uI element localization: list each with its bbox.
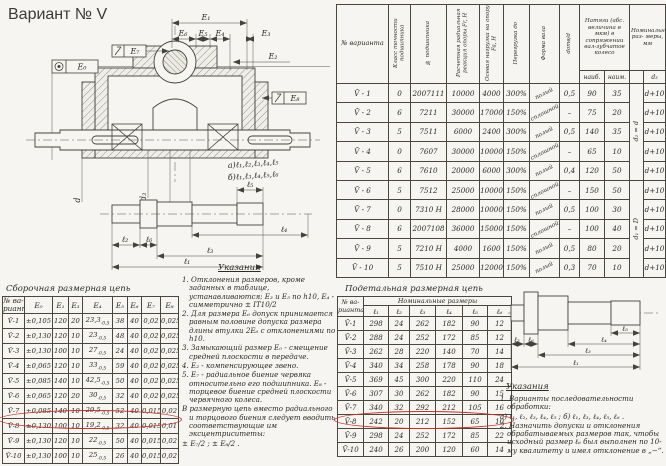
cell: d+10 [644,161,666,180]
cell: V̄-2 [338,331,364,345]
cell: 34 [389,359,410,373]
dim-label-e3: Е₃ [260,29,270,38]
table-row: V̄-3±0,1301001027-0,524400,020,025 [3,344,179,359]
table-row: V̄ - 8620071083600015000150%сплошной–100… [337,219,666,238]
cell: 7511 [411,122,447,141]
note-item: 2. Для размера Е₆ допуск принимается рав… [182,310,337,343]
dim-label-l1: ℓ₁ [572,359,579,367]
cell: 120 [53,329,69,344]
runout-frame-e8: Е₈ [262,92,306,104]
cell: 65 [580,142,605,161]
cell: 7610 [411,161,447,180]
cell: d+10 [644,122,666,141]
note-item: а) ℓ₁, ℓ₂, ℓ₃, ℓ₄, ℓ₅ ; б) ℓ₁, ℓ₃, ℓ₄, ℓ… [500,413,664,421]
cell: ±0,085 [25,404,53,419]
table-row: V̄-4340342581789018 [338,359,512,373]
cell: 0,02 [142,314,161,329]
cell: 90 [463,317,488,331]
col-header-E1: Е₁ [53,297,69,314]
dim-label-e4: Е₄ [214,29,224,38]
cell: d₂ = d [630,84,644,181]
cell: 90 [463,387,488,401]
table-row: V̄ - 6575122500010000150%сплошной–15050d… [337,180,666,199]
cell: 23-0,5 [83,329,113,344]
table-row: V̄-2288242521728512 [338,331,512,345]
cell: 10 [69,419,83,434]
cell: 120 [53,434,69,449]
cell: 0,015 [142,419,161,434]
cell: V̄-4 [338,359,364,373]
cell: 7211 [411,103,447,122]
cell: 150% [504,103,530,122]
cell: 40 [128,329,142,344]
table-row: V̄-73403229221210516 [338,401,512,415]
table-row: V̄-8±0,1301001019,2-0,532400,0150,01 [3,419,179,434]
detail-chain-title: Подетальная размерная цепь [345,284,483,294]
cell: 100 [580,200,605,219]
cell: V̄-10 [3,449,25,464]
cell: 258 [410,359,436,373]
cell: 120 [53,359,69,374]
cell: 0,02 [161,404,179,419]
cell: – [560,103,580,122]
cell: 70 [580,258,605,277]
cell: 10 [69,344,83,359]
dim-label-e0: Е₀ [76,63,87,72]
cell: полый [530,239,560,258]
datum-frame-e0: Е₀ [52,60,98,73]
cell: полый [530,200,560,219]
cell: 10 [69,359,83,374]
cell: 172 [436,429,463,443]
cell: d+10 [644,103,666,122]
cell: V̄-6 [3,389,25,404]
col-header-max: наиб. [580,71,605,84]
diameter-label-d: d [73,197,82,202]
cell: 0,01 [161,419,179,434]
cell: 50 [113,434,128,449]
cell: V̄ - 6 [337,180,389,199]
cell: d+10 [644,239,666,258]
cell: 262 [410,387,436,401]
cell: 4000 [447,239,480,258]
cell: 100 [580,219,605,238]
cell: 10 [605,142,630,161]
cell: – [560,142,580,161]
cell: 0,02 [142,344,161,359]
cell: – [560,180,580,199]
dim-label-l3: ℓ₃ [207,246,214,255]
cell: 10 [69,329,83,344]
dim-label-l6: ℓ₆ [146,235,153,244]
cell: 288 [364,331,389,345]
cell: 298 [364,429,389,443]
col-group-nominal: Номинальные раз- меры, мм [630,5,666,71]
col-header-d3: d₃ [644,71,666,84]
cell: 0 [389,84,411,103]
col-header-E7: Е₇ [142,297,161,314]
cell: 340 [364,401,389,415]
note-item: 5. Е₇ - радиальное биение червяка относи… [182,371,337,404]
cell: 85 [463,331,488,345]
col-header-radial-load: Расчетная радиальная реакция опоры Fr, Н [447,5,480,84]
cell: 20 [69,314,83,329]
variants-table: № варианта Класс точности подшипника № п… [336,4,666,278]
cell: 0,02 [142,374,161,389]
cell: 30000 [447,142,480,161]
col-header-l3: ℓ₃ [410,306,436,317]
cell: 0,015 [142,404,161,419]
cell: 10 [69,374,83,389]
table-row: V̄-6±0,0651202030-0,532400,020,025 [3,389,179,404]
cell: 0,015 [142,449,161,464]
cell: V̄ - 5 [337,161,389,180]
note-item: ± Е₇/2 ; ± Е₈/2 . [182,440,337,448]
cell: ±0,085 [25,374,53,389]
cell: 150% [504,219,530,238]
cell: 20 [389,415,410,429]
col-header-E5: Е₅ [113,297,128,314]
col-header-variant: № варианта [337,5,389,84]
cell: 40 [128,434,142,449]
cell: 19,2-0,5 [83,419,113,434]
cell: 0 [389,200,411,219]
cell: V̄-8 [338,415,364,429]
cell: 90 [580,84,605,103]
cell: 65 [463,415,488,429]
table-row: V̄ - 567610200006000300%полый0,412050d+1… [337,161,666,180]
dim-label-l3: ℓ₃ [584,347,591,355]
table-row: V̄ - 35751160002400300%полый0,514035d+10 [337,122,666,141]
table-row: V̄ - 1057510 Н2500012000150%полый0,37010… [337,258,666,277]
dim-label-l2: ℓ₂ [122,235,129,244]
dim-label-e7: Е₇ [129,47,140,56]
cell: 40 [128,404,142,419]
cell: V̄-7 [3,404,25,419]
cell: 150% [504,180,530,199]
cell: 24 [389,331,410,345]
cell: 2007108 [411,219,447,238]
cell: 300 [410,373,436,387]
cell: 0,025 [161,344,179,359]
cell: 40 [128,344,142,359]
cell: 10000 [480,180,504,199]
cell: 120 [53,314,69,329]
cell: 298 [364,317,389,331]
cell: ±0,105 [25,314,53,329]
cell: 6 [389,219,411,238]
cell: 26 [389,443,410,457]
note-item: 4. Е₂ - компенсирующее звено. [182,362,337,370]
cell: 4000 [480,84,504,103]
cell: 212 [410,415,436,429]
cell: 70 [463,345,488,359]
cell: 38 [113,314,128,329]
cell: 29,5-0,5 [83,404,113,419]
dim-label-l2: ℓ₂ [513,336,520,344]
cell: 100 [53,344,69,359]
cell: 100 [53,419,69,434]
col-header-variant: № ва- рианта [3,297,25,314]
col-header-axial-load: Осевая нагрузка на опору Fa, Н [480,5,504,84]
cell: 35 [605,84,630,103]
cell: 10 [605,258,630,277]
cell: d+10 [644,180,666,199]
table-row: V̄-9298242521728522 [338,429,512,443]
table-row: V̄-53694530022011024 [338,373,512,387]
cell: полый [530,122,560,141]
cell: 140 [580,122,605,141]
cell: 20 [69,389,83,404]
cell: 252 [410,331,436,345]
cell: ±0,130 [25,344,53,359]
cell: 292 [410,401,436,415]
cell: V̄ - 9 [337,239,389,258]
table-row: V̄-7±0,0851401029,5-0,552400,0150,02 [3,404,179,419]
cell: 212 [436,401,463,415]
cell: сплошной [530,142,560,161]
table-row: V̄-10240262001206014 [338,443,512,457]
dim-label-l4: ℓ₄ [281,225,288,234]
dim-label-l4: ℓ₄ [600,336,607,344]
cell: 0,025 [161,359,179,374]
cell: 0,025 [161,389,179,404]
cell: 30000 [447,103,480,122]
table-row: V̄ - 957210 Н40001600150%полый0,58020d+1… [337,239,666,258]
cell: 369 [364,373,389,387]
cell: 28000 [447,200,480,219]
col-header-accuracy: Класс точности подшипника [389,5,411,84]
dim-label-l5: ℓ₅ [621,325,628,333]
cell: 10000 [480,142,504,161]
cell: 10 [69,449,83,464]
notes-left: Указания 1. Отклонения размеров, кроме з… [182,264,337,449]
cell: 50 [605,161,630,180]
table-row: V̄-1298242621829012 [338,317,512,331]
table-row: V̄ - 707310 Н2800010000150%полый0,510030… [337,200,666,219]
cell: 0,025 [161,374,179,389]
col-header-E0: Е₀ [25,297,53,314]
cell: 40 [128,389,142,404]
cell: 12000 [480,258,504,277]
cell: 150 [580,180,605,199]
cell: 24 [113,344,128,359]
dim-label-l6: ℓ₆ [527,336,534,344]
cell: 242 [364,415,389,429]
col-header-E4: Е₄ [83,297,113,314]
cell: V̄-5 [3,374,25,389]
cell: 120 [580,161,605,180]
cell: V̄-7 [338,401,364,415]
assembly-chain-title: Сборочная размерная цепь [6,284,130,294]
table-row: V̄-2±0,1301201023-0,548400,020,025 [3,329,179,344]
cell: 182 [436,317,463,331]
cell: V̄-3 [338,345,364,359]
cell: сплошной [530,219,560,238]
cell: 20 [605,103,630,122]
table-row: V̄ - 4076073000010000150%сплошной–6510d+… [337,142,666,161]
cell: 300% [504,84,530,103]
cell: 140 [53,374,69,389]
cell: ±0,130 [25,419,53,434]
cell: 6000 [447,122,480,141]
col-header-nominal-note [630,71,644,84]
col-header-bearing: № подшипника [411,5,447,84]
col-header-shaft-form: Форма вала [530,5,560,84]
cell: 33-0,5 [83,359,113,374]
cell: 6 [389,103,411,122]
cell: 30 [389,387,410,401]
cell: 42,5-0,5 [83,374,113,389]
cell: 25-0,5 [83,449,113,464]
col-header-overload: Перегрузка до [504,5,530,84]
cell: 23,3-0,5 [83,314,113,329]
cell: V̄-8 [3,419,25,434]
cell: ±0,065 [25,359,53,374]
cell: 300% [504,122,530,141]
cell: 0,02 [142,329,161,344]
cell: ±0,130 [25,449,53,464]
cell: V̄ - 7 [337,200,389,219]
cell: V̄ - 1 [337,84,389,103]
cell: 10000 [480,200,504,219]
cell: 220 [436,373,463,387]
table-row: V̄-4±0,0651201033-0,559400,020,025 [3,359,179,374]
cell: 1600 [480,239,504,258]
cell: 340 [364,359,389,373]
cell: 6 [389,161,411,180]
cell: d+10 [644,219,666,238]
cell: 5 [389,258,411,277]
cell: V̄-1 [338,317,364,331]
table-row: V̄-5±0,0851401042,5-0,550400,020,025 [3,374,179,389]
note-item: 2. Назначить допуски и отклонения обраба… [500,422,664,455]
cell: 17000 [480,103,504,122]
cell: 40 [128,374,142,389]
cell: 252 [410,429,436,443]
scanned-sheet: { "page_title": "Вариант № V", "annotati… [0,0,666,466]
table-row: V̄-9±0,1301201022-0,550400,0150,02 [3,434,179,449]
cell: 262 [364,345,389,359]
cell: d+10 [644,142,666,161]
dim-label-l5: ℓ₅ [247,180,254,189]
cell: 0,02 [142,389,161,404]
table-row: V̄-10±0,1301001025-0,526400,0150,02 [3,449,179,464]
cell: 59 [113,359,128,374]
table-row: V̄-6307302621829015 [338,387,512,401]
cell: 0,5 [560,84,580,103]
cell: 40 [128,449,142,464]
cell: 24 [389,317,410,331]
cell: 10 [69,434,83,449]
cell: 0,02 [142,359,161,374]
cell: 220 [410,345,436,359]
cell: 5 [389,239,411,258]
dim-label-e1: Е₁ [200,13,210,22]
note-item: 3. Замыкающий размер Е₀ - смещение средн… [182,344,337,361]
cell: 75 [580,103,605,122]
cell: 90 [463,359,488,373]
dim-label-e2: Е₂ [267,52,277,61]
cell: 105 [463,401,488,415]
cell: V̄ - 4 [337,142,389,161]
cell: V̄-2 [3,329,25,344]
cell: 0,025 [161,329,179,344]
col-header-min: наим. [605,71,630,84]
dim-label-e8: Е₈ [289,94,300,103]
cell: 120 [53,389,69,404]
cell: 100 [53,449,69,464]
cell: V̄-6 [338,387,364,401]
cell: 262 [410,317,436,331]
cell: 0,5 [560,122,580,141]
assembly-chain-table: № ва- рианта Е₀ Е₁ Е₃ Е₄ Е₅ Е₆ Е₇ Е₈ V̄-… [2,296,179,464]
cell: – [560,219,580,238]
cell: 40 [128,314,142,329]
cell: 0 [389,142,411,161]
col-header-l1: ℓ₁ [364,306,389,317]
cell: 6000 [480,161,504,180]
cell: 7310 Н [411,200,447,219]
cell: V̄-1 [3,314,25,329]
cell: 150% [504,200,530,219]
cell: 60 [463,443,488,457]
cell: 50 [605,180,630,199]
cell: 30 [605,200,630,219]
col-header-variant: № ва- рианта [338,297,364,317]
cell: 40 [128,419,142,434]
col-header-E8: Е₈ [161,297,179,314]
cell: 20000 [447,161,480,180]
cell: V̄-5 [338,373,364,387]
cell: 40 [605,219,630,238]
cell: 0,3 [560,258,580,277]
cell: 10 [69,404,83,419]
cell: V̄-9 [338,429,364,443]
cell: 5 [389,180,411,199]
cell: 32 [389,401,410,415]
cell: 110 [463,373,488,387]
col-header-d-ratio: dотв/d [560,5,580,84]
cell: V̄-4 [3,359,25,374]
cell: 182 [436,387,463,401]
cell: 7607 [411,142,447,161]
cell: d+10 [644,84,666,103]
table-row: V̄ - 102007111100004000300%полый0,59035d… [337,84,666,103]
cell: 2400 [480,122,504,141]
cell: 40 [128,359,142,374]
cell: V̄ - 2 [337,103,389,122]
cell: 52 [113,404,128,419]
cell: 150% [504,239,530,258]
cell: 32 [113,389,128,404]
cell: 120 [436,443,463,457]
cell: полый [530,84,560,103]
cell: V̄-9 [3,434,25,449]
col-header-l5: ℓ₅ [463,306,488,317]
col-header-l4: ℓ₄ [436,306,463,317]
cell: 240 [364,443,389,457]
cell: 7512 [411,180,447,199]
cell: 85 [463,429,488,443]
cell: 36000 [447,219,480,238]
col-group-nominal-sizes: Номинальные размеры [364,297,512,306]
notes-right-title: Указания [506,383,664,393]
notes-right: Указания 1. Варианты последовательности … [500,383,664,456]
assembly-drawing: Е₇ Е₀ Е₈ Е₁ Е₆ Е₅ Е₄ Е₃ Е₂ [0,10,335,282]
shaft-steps [511,292,640,334]
cell: 28 [389,345,410,359]
